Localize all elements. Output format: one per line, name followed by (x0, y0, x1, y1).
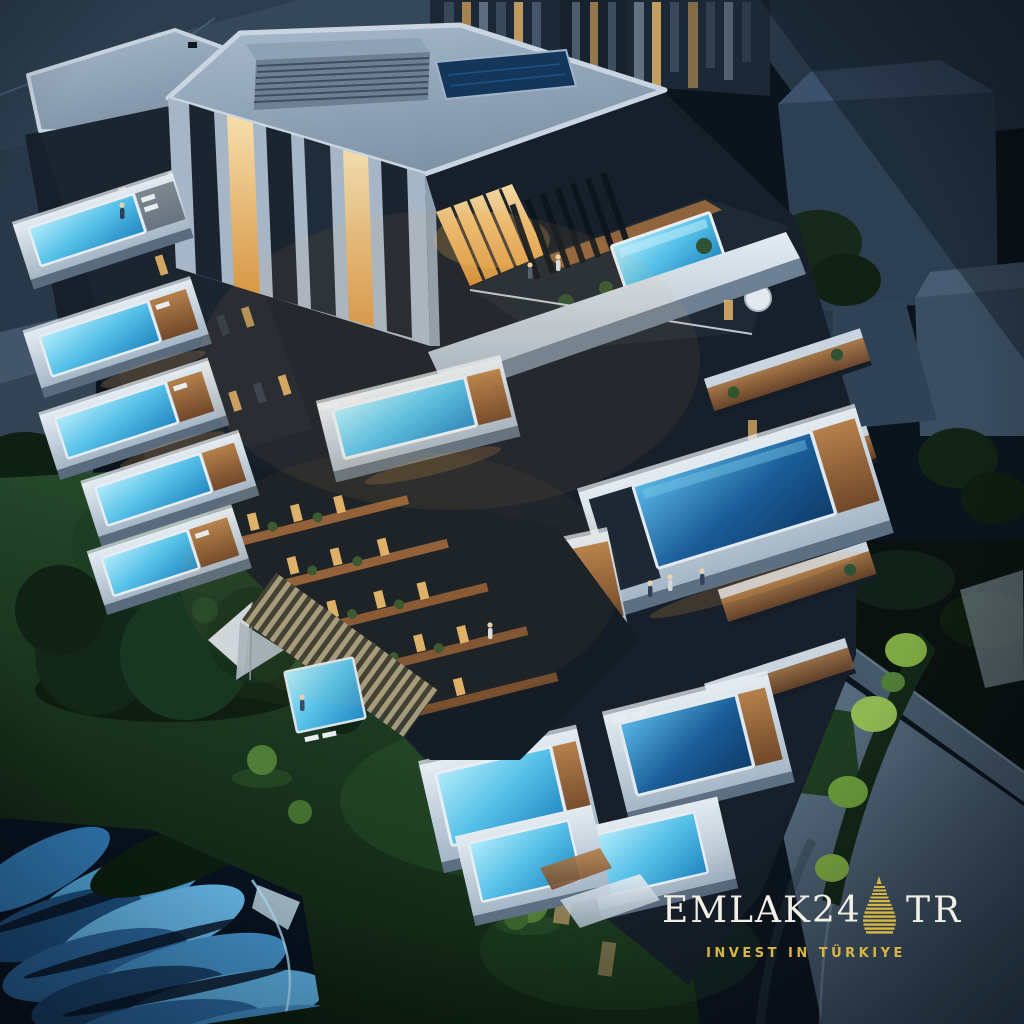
vignette (0, 0, 1024, 1024)
logo-tagline: INVEST IN TÜRKIYE (706, 945, 906, 961)
logo-brand-right: TR (906, 890, 963, 931)
render-viewport: EMLAK24 TR INVEST IN TÜRKIYE (0, 0, 1024, 1024)
logo-brand-left: EMLAK24 (662, 890, 862, 931)
scene-canvas: EMLAK24 TR INVEST IN TÜRKIYE (0, 0, 1024, 1024)
